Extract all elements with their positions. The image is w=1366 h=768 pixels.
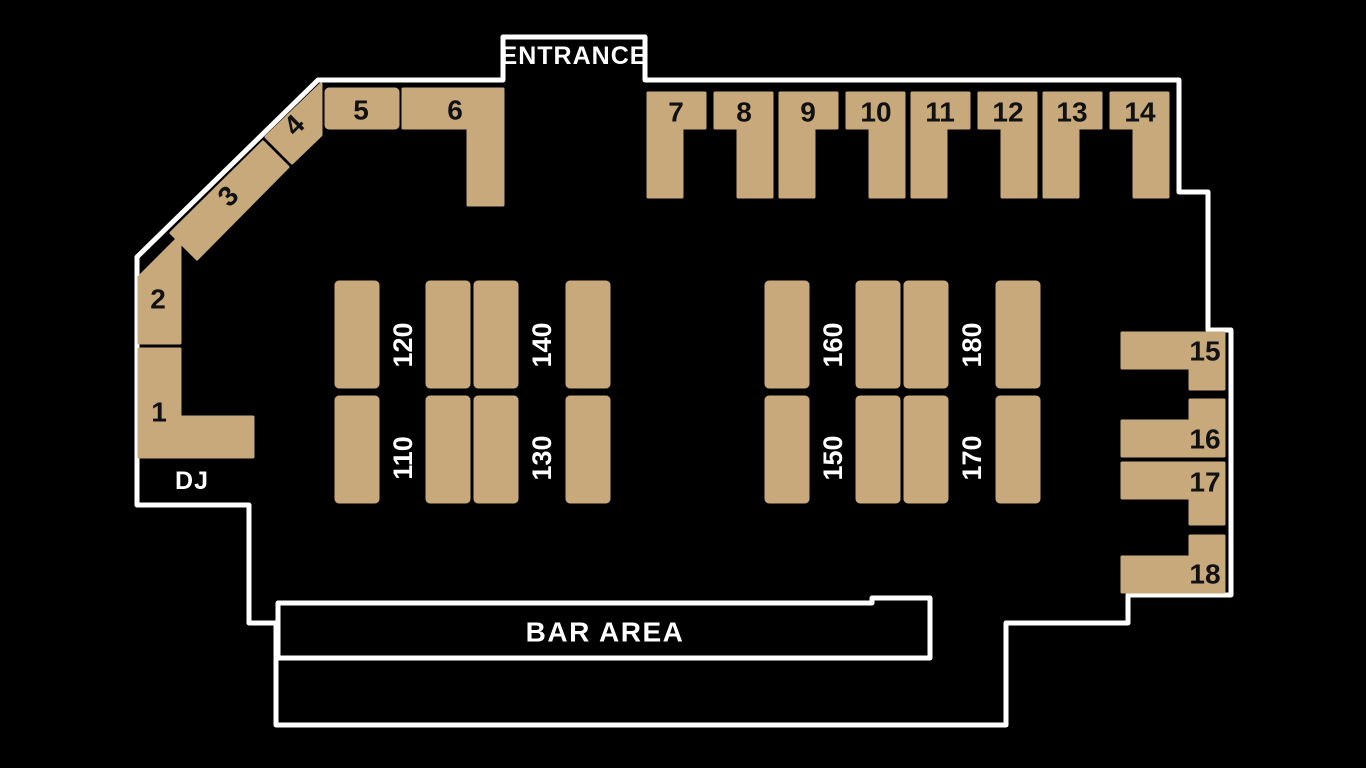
section-130-label: 130 bbox=[527, 435, 557, 480]
table-10-label: 10 bbox=[860, 97, 891, 128]
section-120-label: 120 bbox=[388, 322, 418, 367]
dj-label: DJ bbox=[175, 467, 209, 495]
booth-rect[interactable] bbox=[567, 397, 609, 502]
booth-rect[interactable] bbox=[567, 282, 609, 387]
booth-rect[interactable] bbox=[766, 282, 808, 387]
table-13-label: 13 bbox=[1056, 97, 1087, 128]
booth-rect[interactable] bbox=[475, 282, 517, 387]
table-2-label: 2 bbox=[150, 284, 166, 315]
table-7-label: 7 bbox=[668, 97, 684, 128]
booth-rect[interactable] bbox=[336, 282, 378, 387]
booth-rect[interactable] bbox=[997, 397, 1039, 502]
table-14-label: 14 bbox=[1124, 97, 1156, 128]
table-8-label: 8 bbox=[736, 97, 752, 128]
booth-rect[interactable] bbox=[427, 282, 469, 387]
table-11-label: 11 bbox=[925, 97, 955, 128]
section-180-label: 180 bbox=[957, 322, 987, 367]
table-5-label: 5 bbox=[353, 95, 369, 126]
booth-rect[interactable] bbox=[336, 397, 378, 502]
table-6-label: 6 bbox=[447, 95, 463, 126]
booth-rect[interactable] bbox=[905, 282, 947, 387]
table-16-label: 16 bbox=[1189, 424, 1220, 455]
section-110-label: 110 bbox=[388, 436, 418, 480]
booth-rect[interactable] bbox=[905, 397, 947, 502]
section-160-label: 160 bbox=[818, 322, 848, 367]
booth-rect[interactable] bbox=[427, 397, 469, 502]
table-9-label: 9 bbox=[800, 97, 816, 128]
bar-area-label: BAR AREA bbox=[526, 617, 685, 648]
table-15-label: 15 bbox=[1189, 336, 1220, 367]
booth-rect[interactable] bbox=[857, 282, 899, 387]
section-140-label: 140 bbox=[527, 322, 557, 367]
booth-rect[interactable] bbox=[766, 397, 808, 502]
table-1-label: 1 bbox=[151, 397, 167, 428]
floor-plan: 1 2 3 4 5 6 7 8 9 10 11 12 13 14 15 16 1… bbox=[0, 0, 1366, 768]
booth-rect[interactable] bbox=[857, 397, 899, 502]
section-170-label: 170 bbox=[957, 435, 987, 480]
table-18-label: 18 bbox=[1189, 559, 1220, 590]
section-150-label: 150 bbox=[818, 435, 848, 480]
booth-rect[interactable] bbox=[475, 397, 517, 502]
table-12-label: 12 bbox=[992, 97, 1023, 128]
floor-plan-canvas: 1 2 3 4 5 6 7 8 9 10 11 12 13 14 15 16 1… bbox=[0, 0, 1366, 768]
table-17-label: 17 bbox=[1189, 467, 1220, 498]
booth-rect[interactable] bbox=[997, 282, 1039, 387]
entrance-label: ENTRANCE bbox=[501, 42, 648, 70]
